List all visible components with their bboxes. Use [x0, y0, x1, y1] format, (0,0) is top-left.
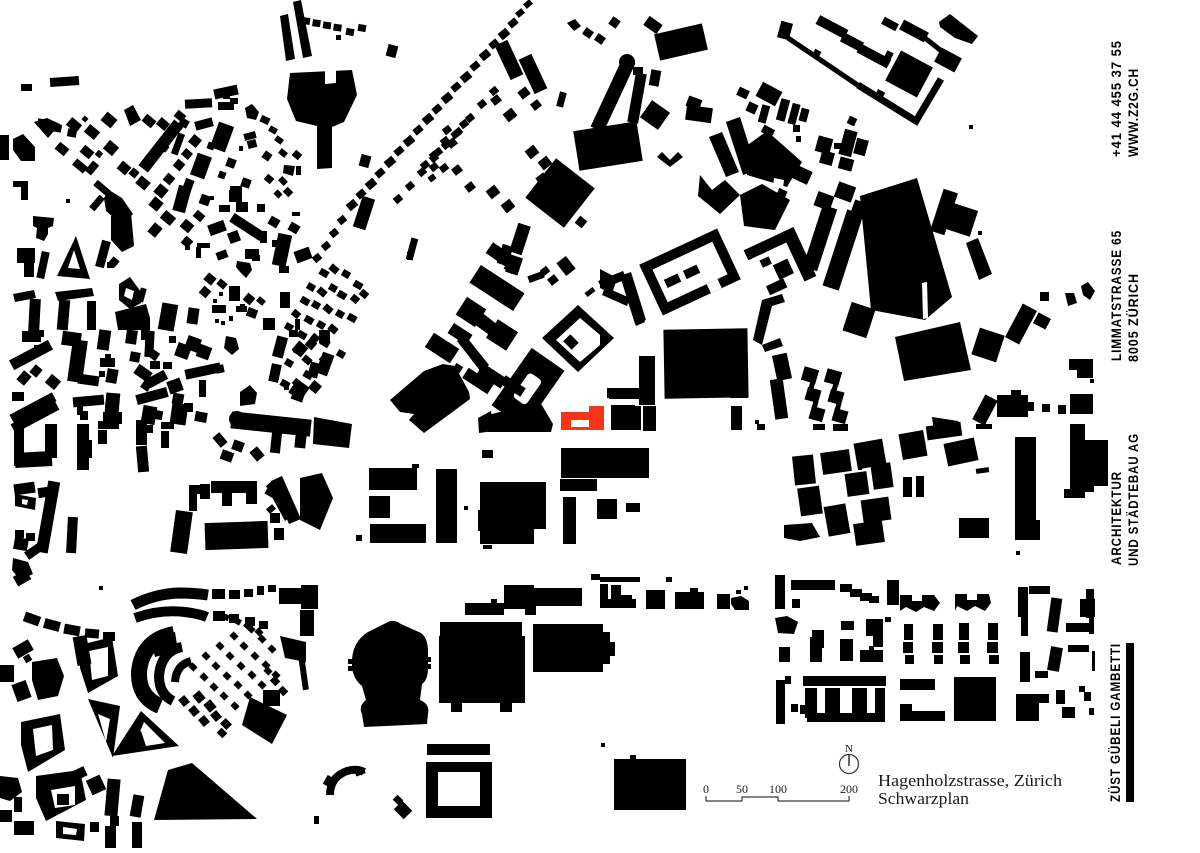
- svg-text:100: 100: [769, 782, 787, 796]
- svg-text:WWW.Z2G.CH: WWW.Z2G.CH: [1125, 68, 1141, 157]
- svg-text:+41 44 455 37 55: +41 44 455 37 55: [1108, 40, 1124, 157]
- svg-text:50: 50: [736, 782, 748, 796]
- svg-text:ZÜST GÜBELI GAMBETTI: ZÜST GÜBELI GAMBETTI: [1107, 643, 1123, 802]
- svg-text:N: N: [845, 743, 853, 755]
- svg-text:200: 200: [840, 782, 858, 796]
- svg-text:0: 0: [703, 782, 709, 796]
- svg-text:Hagenholzstrasse, Zürich: Hagenholzstrasse, Zürich: [878, 771, 1063, 790]
- svg-text:UND STÄDTEBAU AG: UND STÄDTEBAU AG: [1125, 433, 1141, 566]
- svg-text:8005 ZÜRICH: 8005 ZÜRICH: [1125, 273, 1141, 362]
- svg-text:Schwarzplan: Schwarzplan: [878, 789, 970, 808]
- svg-text:ARCHITEKTUR: ARCHITEKTUR: [1108, 471, 1124, 565]
- svg-text:LIMMATSTRASSE 65: LIMMATSTRASSE 65: [1108, 230, 1124, 361]
